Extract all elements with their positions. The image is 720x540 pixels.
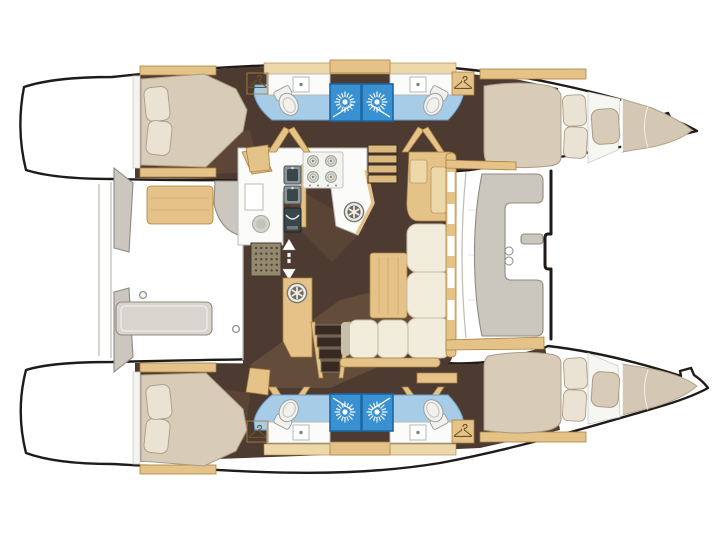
saloon-table: [370, 253, 407, 318]
sofa-cushion: [377, 320, 408, 358]
double-bed: [484, 83, 561, 168]
stove-knob: [309, 185, 311, 187]
hanging-locker: [452, 420, 474, 443]
forward-sill: [446, 160, 516, 170]
window-slot: [448, 268, 455, 288]
pillow: [562, 389, 587, 421]
stair-step: [321, 361, 340, 372]
forward-cockpit-step: [521, 234, 543, 244]
starboard-forward-cabin: [480, 352, 697, 442]
oven-vent: [287, 226, 298, 230]
deck-hatch-icon: [344, 202, 363, 221]
sofa-cushion: [407, 224, 451, 272]
cabin-shelf: [140, 465, 216, 474]
stove-knob: [335, 185, 337, 187]
stair-step: [368, 175, 397, 183]
arrow-dash: [287, 253, 290, 257]
stove-burner-icon: [308, 172, 319, 183]
mooring-ring-icon: [140, 292, 147, 299]
stair-step: [368, 165, 397, 173]
window-slot: [448, 236, 455, 256]
cabin-shelf: [480, 69, 586, 79]
stair-step: [317, 337, 344, 347]
galley-sink-icon: [284, 166, 301, 184]
headboard: [133, 372, 140, 464]
worktop-board: [245, 184, 263, 210]
sofa-cushion: [407, 272, 451, 318]
stove-knob: [317, 185, 319, 187]
aft-cockpit: [99, 168, 243, 372]
side-deck-step: [114, 168, 133, 252]
bow-cushion: [591, 108, 620, 145]
cabin-shelf: [140, 66, 216, 75]
cabin-locker: [246, 145, 270, 172]
bow-sunpad: [622, 99, 692, 152]
coachroof-edge: [462, 172, 466, 338]
galley-sink-icon: [284, 186, 301, 204]
shower-head-icon: [335, 402, 356, 423]
foredeck-trampoline-beam: [545, 171, 551, 339]
window-slot: [448, 172, 455, 192]
stove-burner-icon: [308, 156, 319, 167]
bow-cushion: [591, 371, 620, 408]
cabin-locker: [246, 368, 270, 395]
pillow: [145, 120, 172, 156]
deck-hatch-icon: [287, 283, 306, 302]
stair-step: [368, 145, 397, 153]
shower-top-cabinet: [330, 442, 390, 455]
pillow: [563, 357, 588, 389]
bath-sink-icon: [410, 425, 426, 440]
cupholder: [505, 257, 513, 265]
nav-locker: [410, 160, 427, 183]
sofa-armrest: [341, 322, 350, 356]
cabin-partition: [417, 373, 457, 383]
stair-step: [368, 155, 397, 163]
bath-sink-icon: [410, 77, 426, 92]
sofa-cushion: [349, 320, 378, 358]
cabin-shelf: [140, 363, 216, 372]
bath-sink-icon: [293, 425, 309, 440]
cabin-shelf: [140, 168, 216, 177]
stair-step: [319, 349, 342, 359]
shower-head-icon: [367, 402, 388, 423]
pillow: [145, 384, 172, 420]
hanging-locker: [452, 72, 474, 95]
stove-burner-icon: [326, 156, 337, 167]
stove-knob: [327, 185, 329, 187]
cockpit-bench: [147, 186, 213, 224]
arrow-dash: [287, 259, 290, 263]
sofa-corner-cushion: [407, 318, 451, 358]
headboard: [133, 76, 140, 168]
pillow: [562, 94, 587, 126]
double-bed: [484, 352, 561, 433]
porthole-inner: [256, 219, 266, 229]
forward-sill: [446, 337, 544, 350]
pillow: [143, 86, 170, 122]
window-slot: [448, 204, 455, 224]
saloon-aft-wall: [340, 358, 440, 367]
shower-top-cabinet: [330, 60, 390, 73]
window-slot: [448, 300, 455, 320]
cabin-shelf: [480, 432, 586, 442]
catamaran-floor-plan: [0, 0, 720, 540]
nav-seat: [431, 167, 447, 213]
bath-sink-icon: [293, 77, 309, 92]
pillow: [143, 418, 170, 454]
stove-burner-icon: [326, 172, 337, 183]
forward-cockpit: [446, 160, 544, 350]
floor-plan-canvas: [0, 0, 720, 540]
mooring-ring-icon: [233, 326, 240, 333]
cockpit-table: [116, 302, 212, 335]
cupholder: [505, 247, 513, 255]
pillow: [563, 126, 588, 158]
port-forward-cabin: [480, 69, 692, 168]
